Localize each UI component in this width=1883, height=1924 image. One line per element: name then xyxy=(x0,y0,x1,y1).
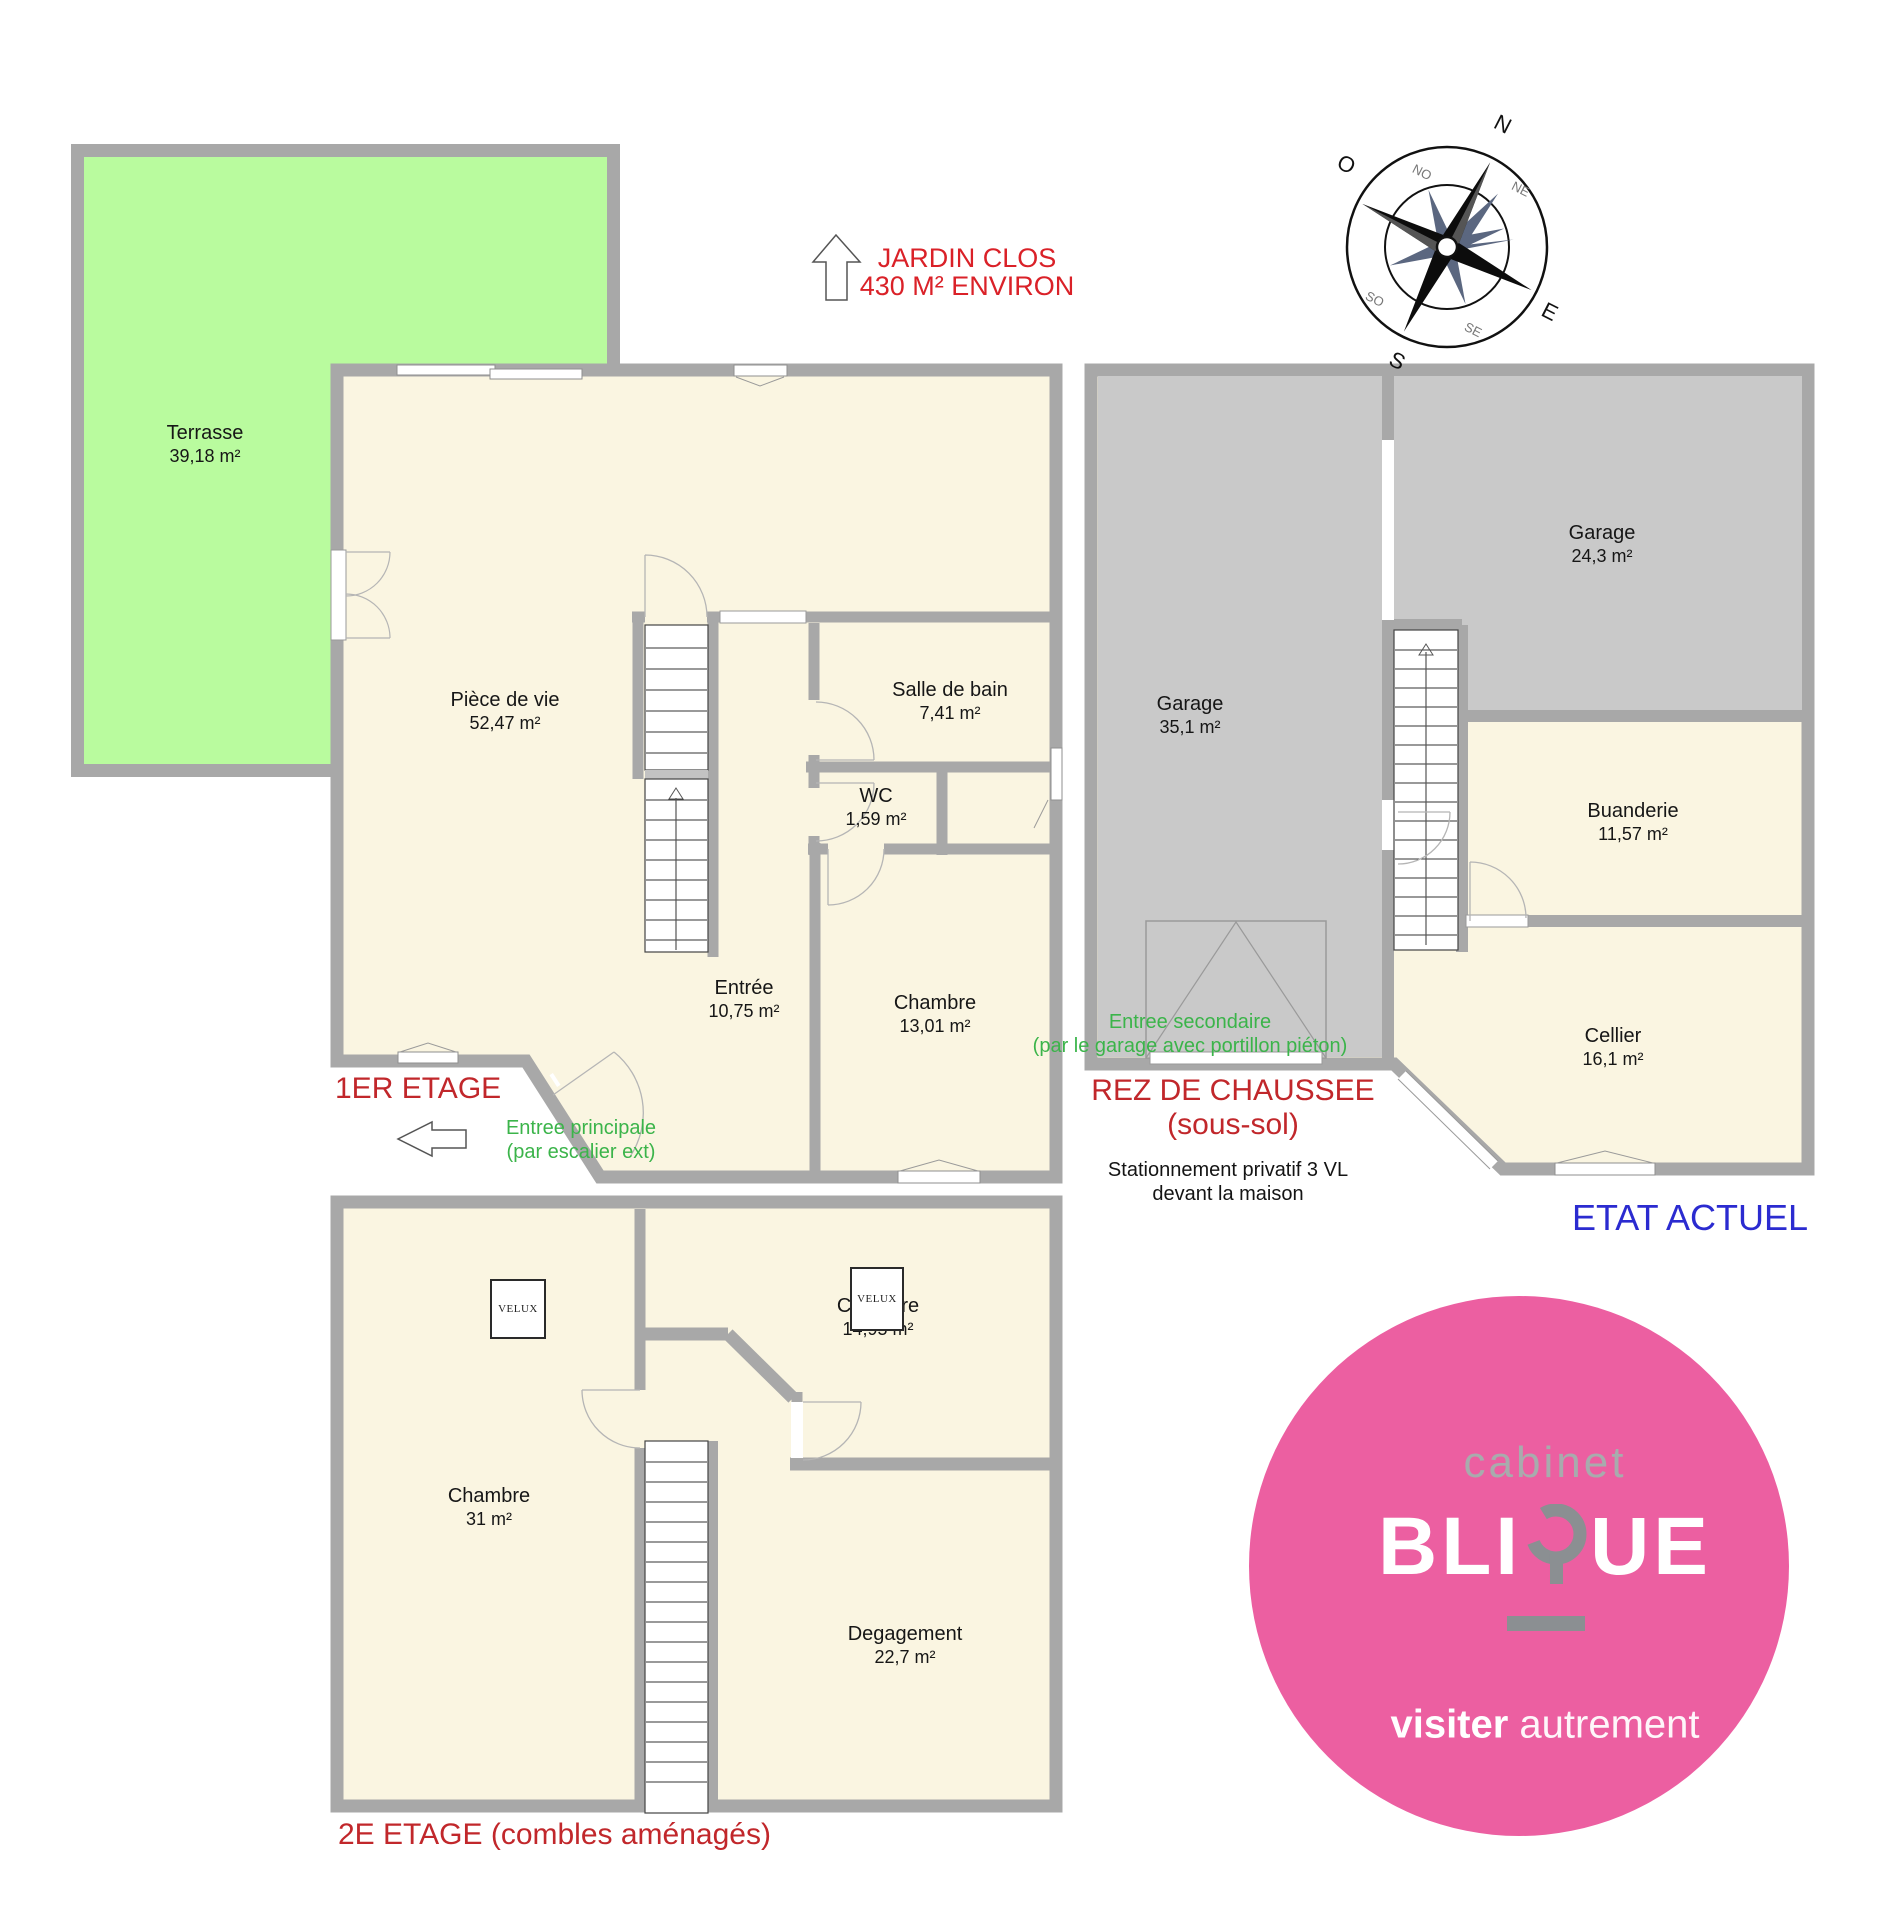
label-terrasse: Terrasse 39,18 m² xyxy=(167,422,244,468)
compass-o: O xyxy=(1333,149,1360,179)
main-entrance-arrow-icon xyxy=(398,1122,466,1156)
label-cellier: Cellier 16,1 m² xyxy=(1582,1025,1643,1071)
floor2-plan xyxy=(337,1202,1056,1813)
label-buanderie: Buanderie 11,57 m² xyxy=(1587,800,1678,846)
floorplan-canvas: N E S O NO NE SE SO Terrasse 39,18 m² Pi… xyxy=(0,0,1883,1924)
floor1-stairs xyxy=(645,625,708,952)
compass-icon: N E S O NO NE SE SO xyxy=(1319,109,1575,375)
rdc-stairs xyxy=(1394,630,1458,950)
entree-principale-annotation: Entree principale (par escalier ext) xyxy=(506,1116,656,1164)
label-chambre31: Chambre 31 m² xyxy=(448,1485,530,1531)
velux-skylight-2: VELUX xyxy=(850,1267,904,1331)
garage-passage-opening xyxy=(1382,440,1394,620)
agency-logo: cabinet BLI UE visiter autrement xyxy=(1249,1296,1789,1836)
north-garden-arrow-icon xyxy=(813,235,860,300)
logo-brand-text: BLI UE xyxy=(1378,1494,1712,1600)
label-degagement: Degagement 22,7 m² xyxy=(848,1623,963,1669)
floor1-title: 1ER ETAGE xyxy=(335,1072,501,1106)
logo-underline-bar xyxy=(1507,1616,1585,1631)
stationnement-annotation: Stationnement privatif 3 VL devant la ma… xyxy=(1108,1158,1348,1206)
compass-e: E xyxy=(1538,297,1562,326)
label-entree: Entrée 10,75 m² xyxy=(708,977,779,1023)
label-wc: WC 1,59 m² xyxy=(845,785,906,831)
label-garage2: Garage 24,3 m² xyxy=(1569,522,1636,568)
floor2-stairs xyxy=(645,1441,708,1813)
label-salle-de-bain: Salle de bain 7,41 m² xyxy=(892,679,1008,725)
pedestrian-gate-opening xyxy=(1382,800,1394,850)
etat-actuel-label: ETAT ACTUEL xyxy=(1572,1197,1808,1239)
velux-skylight-1: VELUX xyxy=(490,1279,546,1339)
chambre2-door-opening xyxy=(791,1402,803,1458)
logo-tagline: visiter autrement xyxy=(1390,1703,1699,1748)
compass-no: NO xyxy=(1410,161,1434,183)
logo-cabinet-text: cabinet xyxy=(1464,1438,1627,1488)
label-garage1: Garage 35,1 m² xyxy=(1157,693,1224,739)
entree-secondaire-annotation: Entree secondaire (par le garage avec po… xyxy=(1033,1010,1348,1058)
rdc-title: REZ DE CHAUSSEE (sous-sol) xyxy=(1091,1074,1374,1142)
jardin-annotation: JARDIN CLOS 430 M² ENVIRON xyxy=(860,244,1075,300)
label-piece-de-vie: Pièce de vie 52,47 m² xyxy=(451,689,560,735)
label-chambre-f1: Chambre 13,01 m² xyxy=(894,992,976,1038)
compass-ne: NE xyxy=(1509,178,1532,200)
compass-se: SE xyxy=(1462,319,1485,340)
garage1-floor xyxy=(1098,376,1386,1057)
floor2-title: 2E ETAGE (combles aménagés) xyxy=(338,1818,771,1852)
cellier-window xyxy=(1555,1163,1655,1175)
compass-n: N xyxy=(1490,109,1516,138)
logo-q-icon xyxy=(1524,1504,1588,1610)
floor1-plan xyxy=(331,365,1062,1183)
